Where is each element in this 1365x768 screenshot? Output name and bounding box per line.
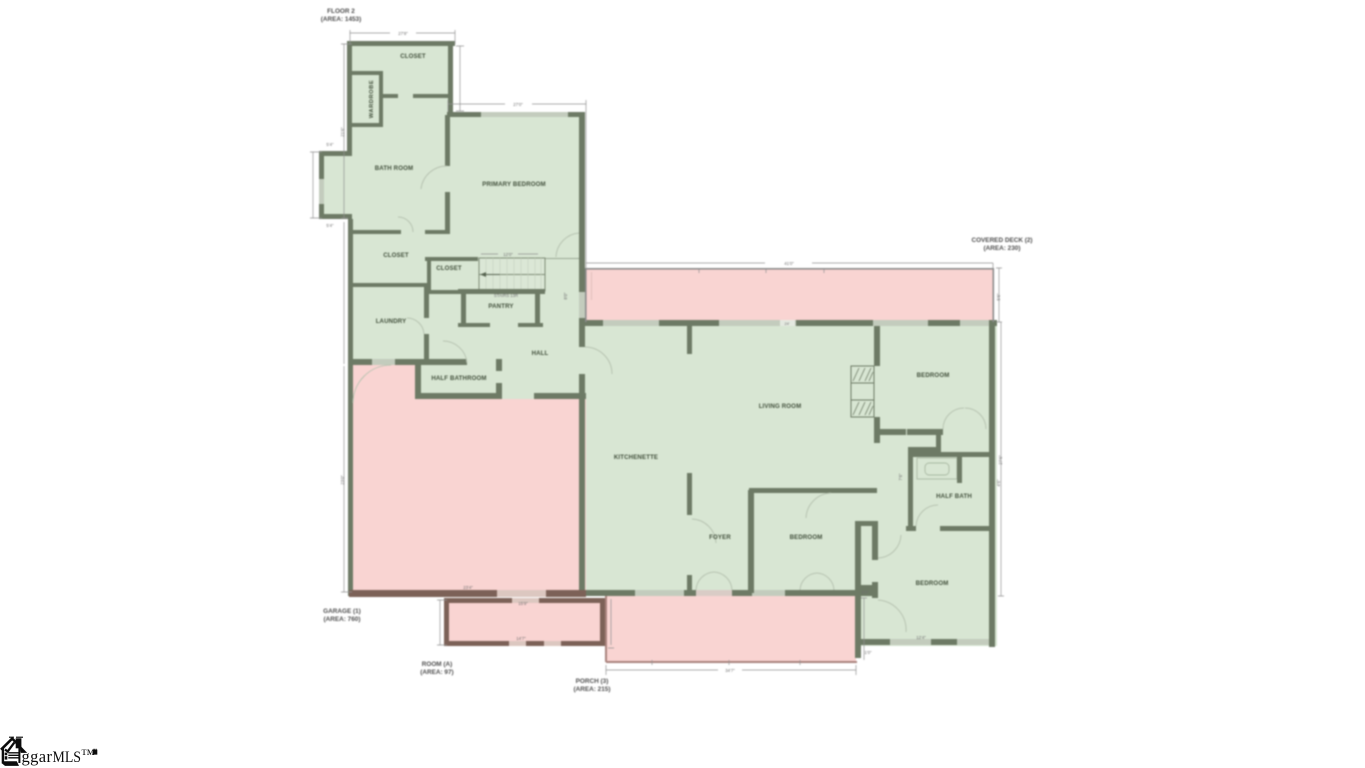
svg-text:CLOSET: CLOSET: [436, 265, 462, 272]
svg-text:4'6": 4'6": [996, 479, 1001, 487]
svg-text:PORCH (3): PORCH (3): [576, 678, 609, 685]
svg-text:5'4": 5'4": [326, 223, 334, 228]
svg-text:12'0": 12'0": [503, 252, 513, 257]
svg-text:BEDROOM: BEDROOM: [916, 580, 949, 587]
svg-text:ROOM (A): ROOM (A): [422, 661, 453, 668]
svg-text:LAUNDRY: LAUNDRY: [376, 318, 407, 325]
svg-text:7'6": 7'6": [898, 473, 903, 481]
svg-text:(AREA: 97): (AREA: 97): [420, 669, 453, 676]
svg-text:FLOOR 2: FLOOR 2: [327, 8, 355, 15]
svg-text:KITCHENETTE: KITCHENETTE: [614, 454, 658, 461]
svg-text:WARDROBE: WARDROBE: [369, 80, 375, 118]
svg-text:23'4": 23'4": [463, 585, 473, 590]
svg-text:MLS: MLS: [53, 748, 82, 766]
svg-text:24': 24': [785, 322, 790, 326]
svg-text:CLOSET: CLOSET: [383, 252, 409, 259]
svg-text:27'8": 27'8": [398, 31, 408, 36]
svg-text:27'0": 27'0": [513, 102, 523, 107]
svg-text:HALF BATH: HALF BATH: [936, 493, 972, 500]
svg-text:8'0": 8'0": [563, 292, 568, 300]
svg-text:1'0": 1'0": [864, 650, 872, 655]
svg-text:GARAGE (1): GARAGE (1): [323, 608, 361, 615]
svg-text:23'0": 23'0": [340, 475, 345, 485]
svg-text:STAIRS 13R: STAIRS 13R: [494, 293, 518, 298]
svg-text:CLOSET: CLOSET: [400, 53, 426, 60]
svg-text:HALL: HALL: [532, 350, 549, 357]
svg-text:BATH ROOM: BATH ROOM: [375, 165, 413, 172]
svg-text:27'6": 27'6": [998, 455, 1003, 465]
svg-text:41'0": 41'0": [784, 261, 794, 266]
svg-text:14'7": 14'7": [516, 636, 526, 641]
svg-text:5'4": 5'4": [326, 142, 334, 147]
svg-text:(AREA: 215): (AREA: 215): [574, 686, 611, 693]
svg-text:FOYER: FOYER: [709, 534, 731, 541]
svg-text:PRIMARY BEDROOM: PRIMARY BEDROOM: [482, 181, 546, 188]
svg-text:34'7": 34'7": [725, 668, 735, 673]
svg-text:21'6": 21'6": [340, 127, 345, 137]
svg-text:(AREA: 760): (AREA: 760): [324, 616, 361, 623]
svg-text:BEDROOM: BEDROOM: [790, 534, 823, 541]
svg-text:COVERED DECK (2): COVERED DECK (2): [971, 237, 1032, 244]
svg-text:BEDROOM: BEDROOM: [917, 372, 950, 379]
svg-text:5'6": 5'6": [996, 293, 1001, 301]
svg-text:ggar: ggar: [22, 747, 53, 766]
svg-text:15'9": 15'9": [518, 601, 528, 606]
svg-text:HALF BATHROOM: HALF BATHROOM: [431, 375, 486, 382]
svg-text:LIVING ROOM: LIVING ROOM: [759, 403, 802, 410]
svg-text:12'4": 12'4": [916, 635, 926, 640]
svg-text:(AREA: 230): (AREA: 230): [984, 245, 1021, 252]
svg-text:(AREA: 1453): (AREA: 1453): [321, 16, 362, 23]
svg-text:3'0": 3'0": [861, 590, 869, 595]
svg-text:PANTRY: PANTRY: [488, 303, 513, 310]
